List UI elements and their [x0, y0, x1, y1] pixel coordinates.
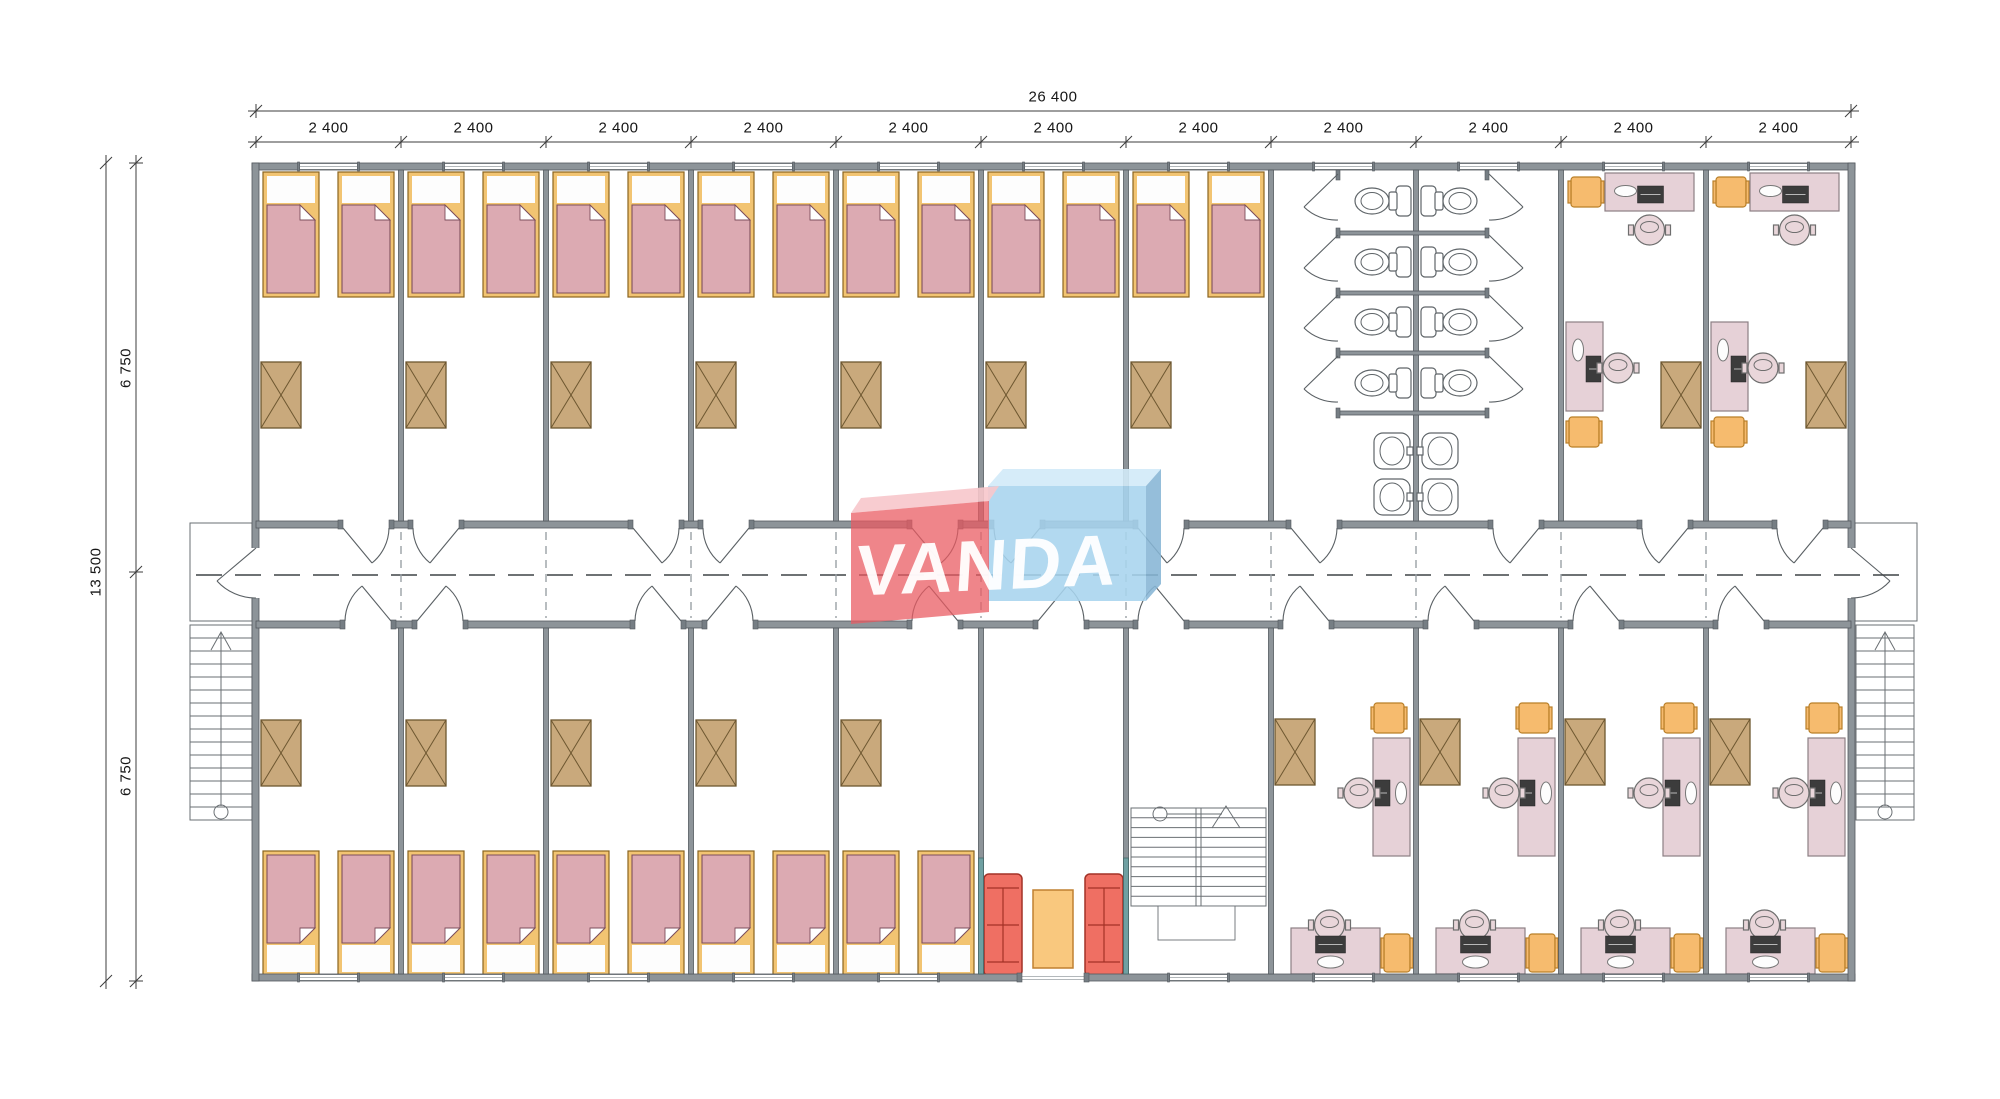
- bed-icon: [338, 851, 394, 976]
- tray-icon: [1718, 339, 1729, 361]
- bed-icon: [408, 851, 464, 976]
- dim-module-width: 2 400: [598, 120, 638, 137]
- computer-icon: [1461, 936, 1491, 953]
- wardrobe-icon: [696, 362, 736, 428]
- stool-icon: [1516, 703, 1552, 733]
- bed-icon: [483, 851, 539, 976]
- computer-icon: [1751, 936, 1781, 953]
- computer-icon: [1316, 936, 1346, 953]
- dim-module-width: 2 400: [1468, 120, 1508, 137]
- wardrobe-icon: [1275, 719, 1315, 785]
- dim-module-width: 2 400: [1323, 120, 1363, 137]
- wardrobe-icon: [406, 720, 446, 786]
- office-chair-icon: [1629, 215, 1671, 245]
- tray-icon: [1760, 186, 1782, 197]
- vanda-logo: [851, 469, 1161, 624]
- dim-module-width: 2 400: [1758, 120, 1798, 137]
- bed-icon: [553, 851, 609, 976]
- dim-module-width: 2 400: [308, 120, 348, 137]
- toilet-icon: [1421, 247, 1477, 277]
- tray-icon: [1396, 782, 1407, 804]
- bed-icon: [698, 172, 754, 297]
- dim-module-width: 2 400: [888, 120, 928, 137]
- wardrobe-icon: [406, 362, 446, 428]
- toilet-icon: [1355, 247, 1411, 277]
- wardrobe-icon: [1131, 362, 1171, 428]
- sink-icon: [1417, 433, 1458, 469]
- toilet-icon: [1421, 368, 1477, 398]
- stool-icon: [1816, 934, 1848, 972]
- bed-icon: [628, 172, 684, 297]
- wardrobe-icon: [261, 720, 301, 786]
- tray-icon: [1686, 782, 1697, 804]
- computer-icon: [1638, 186, 1664, 203]
- dim-total-height: 13 500: [88, 548, 105, 597]
- tray-icon: [1573, 339, 1584, 361]
- bed-icon: [263, 851, 319, 976]
- toilet-icon: [1421, 186, 1477, 216]
- dim-module-width: 2 400: [1613, 120, 1653, 137]
- wardrobe-icon: [1806, 362, 1846, 428]
- sink-icon: [1417, 479, 1458, 515]
- stool-icon: [1671, 934, 1703, 972]
- stool-icon: [1566, 417, 1602, 447]
- tray-icon: [1318, 956, 1344, 968]
- bed-icon: [698, 851, 754, 976]
- lounge: [984, 874, 1123, 976]
- bed-icon: [338, 172, 394, 297]
- stool-icon: [1568, 177, 1604, 207]
- stool-icon: [1371, 703, 1407, 733]
- wardrobe-icon: [1661, 362, 1701, 428]
- floor-plan-drawing: [0, 0, 2000, 1099]
- bed-icon: [843, 172, 899, 297]
- tray-icon: [1753, 956, 1779, 968]
- stool-icon: [1381, 934, 1413, 972]
- wardrobe-icon: [261, 362, 301, 428]
- toilet-icon: [1355, 368, 1411, 398]
- dim-module-width: 2 400: [1178, 120, 1218, 137]
- stool-icon: [1526, 934, 1558, 972]
- wardrobe-icon: [696, 720, 736, 786]
- stool-icon: [1661, 703, 1697, 733]
- bed-icon: [628, 851, 684, 976]
- wardrobe-icon: [1420, 719, 1460, 785]
- dim-module-width: 2 400: [743, 120, 783, 137]
- bed-icon: [918, 172, 974, 297]
- wardrobe-icon: [1565, 719, 1605, 785]
- wardrobe-icon: [1710, 719, 1750, 785]
- interior-staircase: [1131, 806, 1266, 940]
- bed-icon: [483, 172, 539, 297]
- bed-icon: [1063, 172, 1119, 297]
- dim-module-width: 2 400: [453, 120, 493, 137]
- floor-plan-canvas: 26 400 13 500 VANDA 2 4002 4002 4002 400…: [0, 0, 2000, 1099]
- bed-icon: [263, 172, 319, 297]
- sink-icon: [1374, 433, 1413, 469]
- bed-icon: [1208, 172, 1264, 297]
- bed-icon: [773, 851, 829, 976]
- computer-icon: [1606, 936, 1636, 953]
- bed-icon: [773, 172, 829, 297]
- dim-module-width: 2 400: [1033, 120, 1073, 137]
- dim-total-width: 26 400: [1029, 89, 1078, 106]
- tray-icon: [1463, 956, 1489, 968]
- stool-icon: [1713, 177, 1749, 207]
- tray-icon: [1608, 956, 1634, 968]
- wardrobe-icon: [841, 362, 881, 428]
- bed-icon: [1133, 172, 1189, 297]
- tray-icon: [1541, 782, 1552, 804]
- toilet-icon: [1421, 307, 1477, 337]
- toilet-icon: [1355, 307, 1411, 337]
- dim-half-height: 6 750: [118, 756, 135, 796]
- tray-icon: [1615, 186, 1637, 197]
- bed-icon: [918, 851, 974, 976]
- stool-icon: [1806, 703, 1842, 733]
- entrance-door: [1017, 973, 1089, 982]
- stool-icon: [1711, 417, 1747, 447]
- bed-icon: [408, 172, 464, 297]
- wardrobe-icon: [551, 362, 591, 428]
- bed-icon: [553, 172, 609, 297]
- computer-icon: [1783, 186, 1809, 203]
- sink-icon: [1374, 479, 1413, 515]
- wardrobe-icon: [986, 362, 1026, 428]
- bed-icon: [988, 172, 1044, 297]
- tray-icon: [1831, 782, 1842, 804]
- wardrobe-icon: [551, 720, 591, 786]
- bed-icon: [843, 851, 899, 976]
- wardrobe-icon: [841, 720, 881, 786]
- toilet-icon: [1355, 186, 1411, 216]
- office-chair-icon: [1774, 215, 1816, 245]
- dim-half-height: 6 750: [118, 348, 135, 388]
